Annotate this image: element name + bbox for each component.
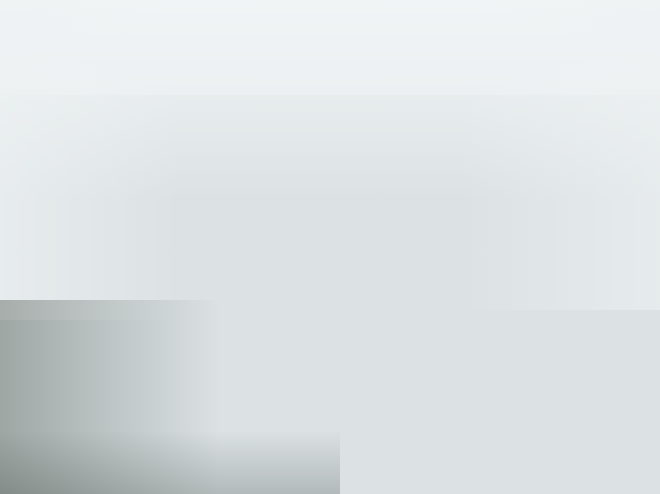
fog-left	[0, 0, 180, 320]
vignette-bottom	[0, 430, 340, 494]
scene-canvas	[0, 0, 660, 494]
aerial-rendering-masterplan	[0, 0, 660, 494]
fog-right	[460, 0, 660, 310]
